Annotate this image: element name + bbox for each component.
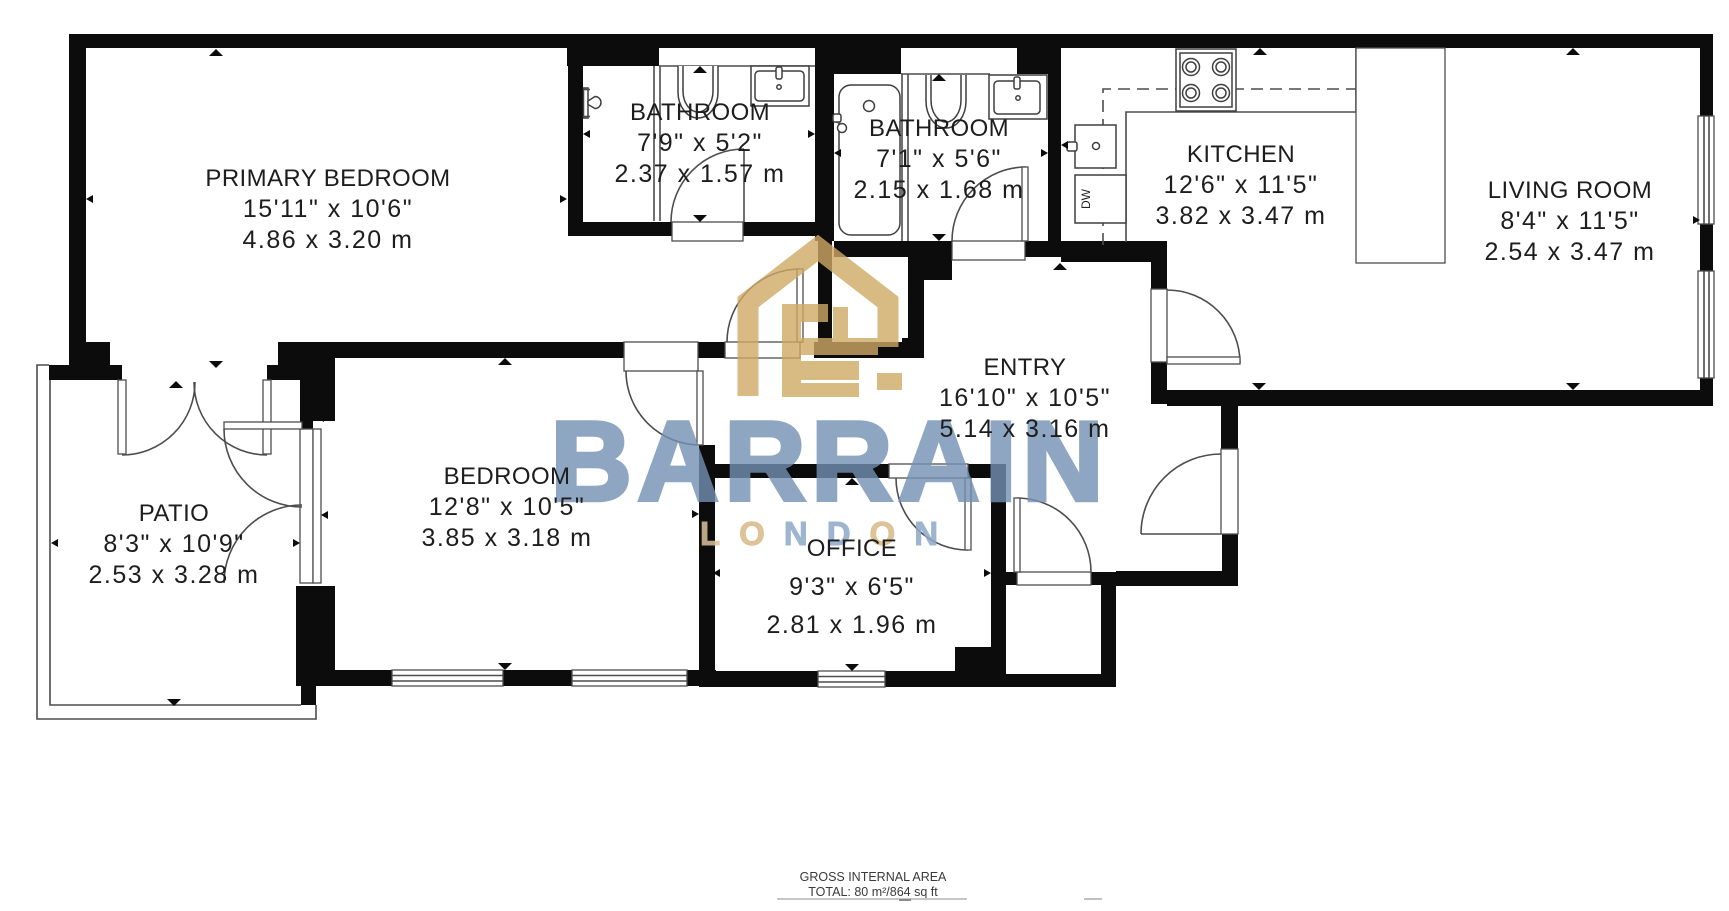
svg-text:8'4" x 11'5": 8'4" x 11'5" (1500, 207, 1639, 235)
svg-text:PATIO: PATIO (139, 500, 209, 527)
svg-text:8'3" x 10'9": 8'3" x 10'9" (103, 530, 244, 558)
svg-text:12'6" x 11'5": 12'6" x 11'5" (1164, 171, 1319, 199)
svg-text:3.85 x 3.18 m: 3.85 x 3.18 m (422, 524, 593, 552)
svg-text:2.15 x 1.68 m: 2.15 x 1.68 m (854, 176, 1025, 204)
svg-text:9'3" x 6'5": 9'3" x 6'5" (789, 573, 915, 601)
svg-text:ENTRY: ENTRY (984, 354, 1067, 381)
svg-text:16'10" x 10'5": 16'10" x 10'5" (939, 384, 1111, 412)
svg-text:2.81 x 1.96 m: 2.81 x 1.96 m (767, 611, 938, 639)
svg-text:BEDROOM: BEDROOM (444, 463, 571, 490)
svg-text:PRIMARY BEDROOM: PRIMARY BEDROOM (205, 165, 450, 192)
svg-text:OFFICE: OFFICE (807, 535, 897, 562)
svg-text:3.82 x 3.47 m: 3.82 x 3.47 m (1156, 202, 1327, 230)
svg-text:LIVING ROOM: LIVING ROOM (1488, 177, 1652, 204)
svg-text:TOTAL: 80 m²/864 sq ft: TOTAL: 80 m²/864 sq ft (808, 885, 938, 899)
svg-text:12'8" x 10'5": 12'8" x 10'5" (429, 493, 586, 521)
svg-text:4.86 x 3.20 m: 4.86 x 3.20 m (243, 226, 414, 254)
svg-text:2.54 x 3.47 m: 2.54 x 3.47 m (1485, 238, 1656, 266)
svg-text:BATHROOM: BATHROOM (869, 115, 1009, 142)
svg-text:KITCHEN: KITCHEN (1187, 141, 1295, 168)
svg-text:7'9" x 5'2": 7'9" x 5'2" (637, 129, 763, 157)
svg-text:2.37 x 1.57 m: 2.37 x 1.57 m (615, 160, 786, 188)
svg-text:2.53 x 3.28 m: 2.53 x 3.28 m (89, 561, 260, 589)
svg-text:GROSS INTERNAL AREA: GROSS INTERNAL AREA (800, 870, 947, 884)
svg-text:BATHROOM: BATHROOM (630, 99, 770, 126)
svg-text:15'11" x 10'6": 15'11" x 10'6" (243, 195, 413, 223)
svg-text:7'1" x 5'6": 7'1" x 5'6" (876, 145, 1002, 173)
svg-text:5.14 x 3.16 m: 5.14 x 3.16 m (940, 415, 1111, 443)
svg-text:DW: DW (1079, 188, 1093, 209)
